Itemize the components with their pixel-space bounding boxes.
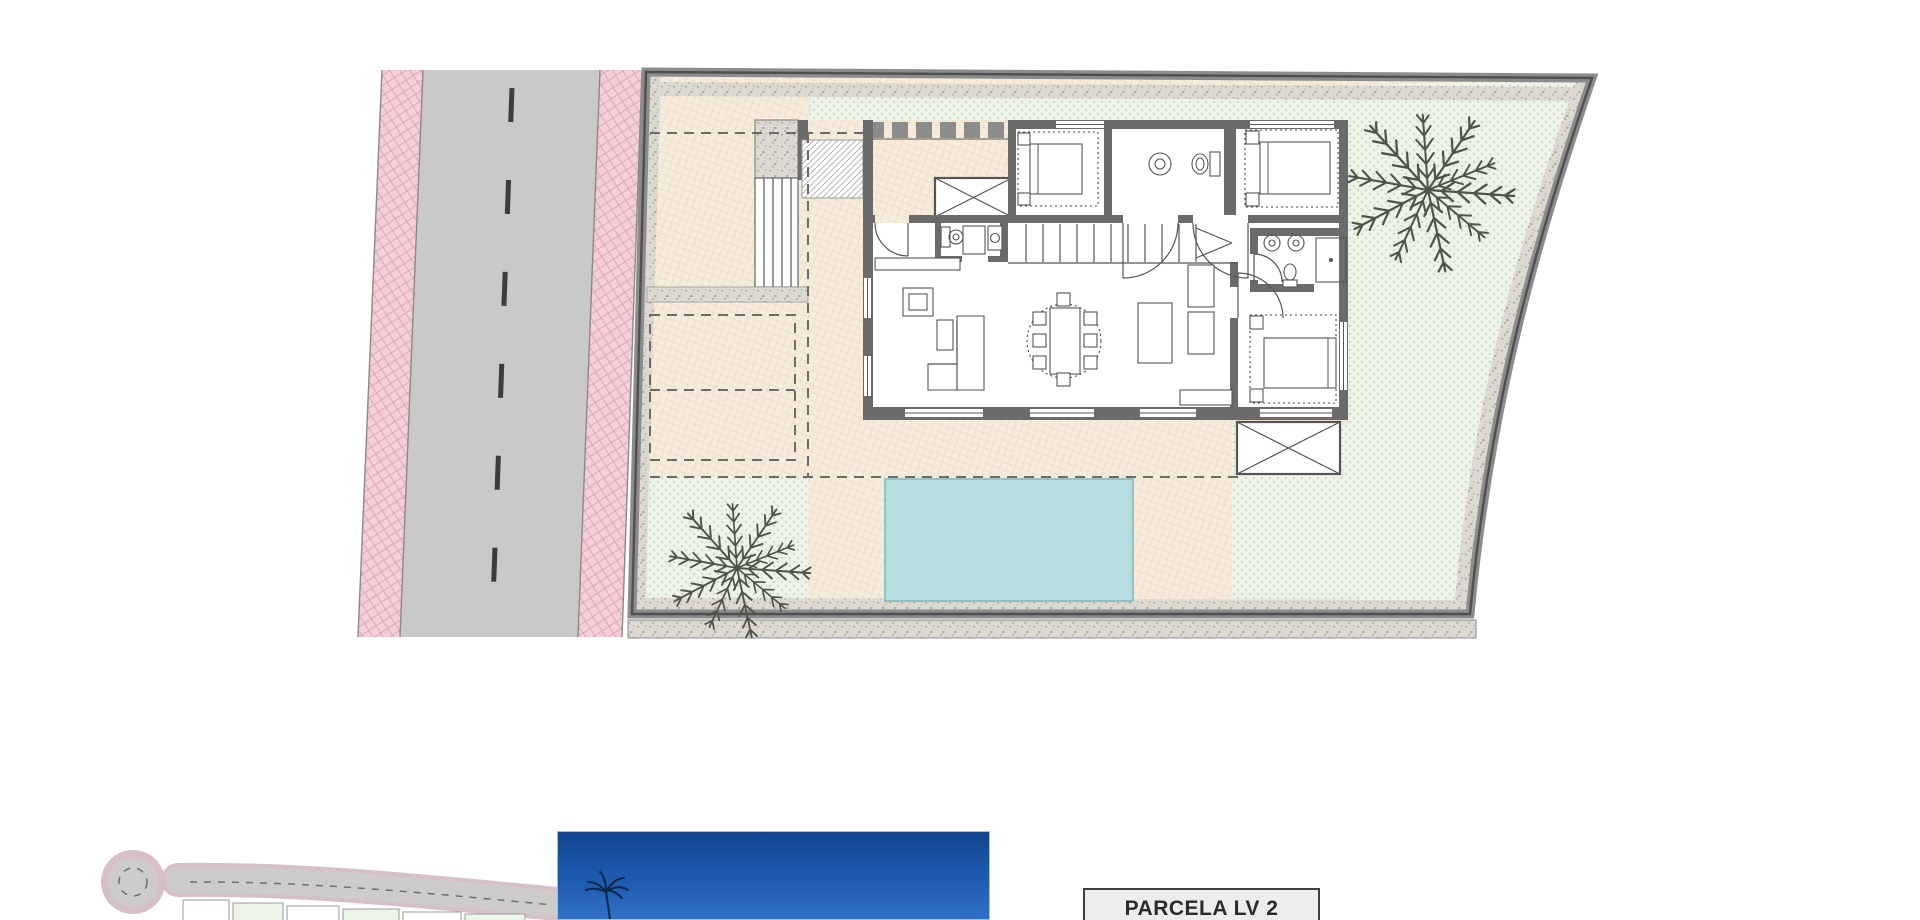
entry-gravel-pad [755,120,798,178]
parcel-label-text: PARCELA LV 2 [1125,897,1279,920]
site-key-map [101,850,557,920]
dining-table [1050,308,1080,374]
site-plan-canvas [0,0,1920,920]
photo-overlay [558,832,991,919]
sky-photo-thumbnail [557,831,990,920]
side-table [937,320,953,350]
site-plan-sheet: PARCELA LV 2 [0,0,1920,920]
street-asphalt [400,70,600,637]
armchair [903,288,933,316]
kitchen-units [1188,265,1214,307]
parcel-label-box: PARCELA LV 2 [1083,888,1320,920]
swimming-pool [885,479,1133,601]
kitchen-counter [1180,390,1232,405]
palm-silhouette-icon [586,872,628,919]
kitchen-island [1138,303,1172,363]
trellis [802,140,863,198]
cul-de-sac-roundabout [108,857,158,907]
wardrobe-box [935,178,1012,217]
street [358,70,642,637]
pergola-box [1237,422,1340,474]
sideboard [875,258,960,270]
gravel-strip [647,287,808,302]
